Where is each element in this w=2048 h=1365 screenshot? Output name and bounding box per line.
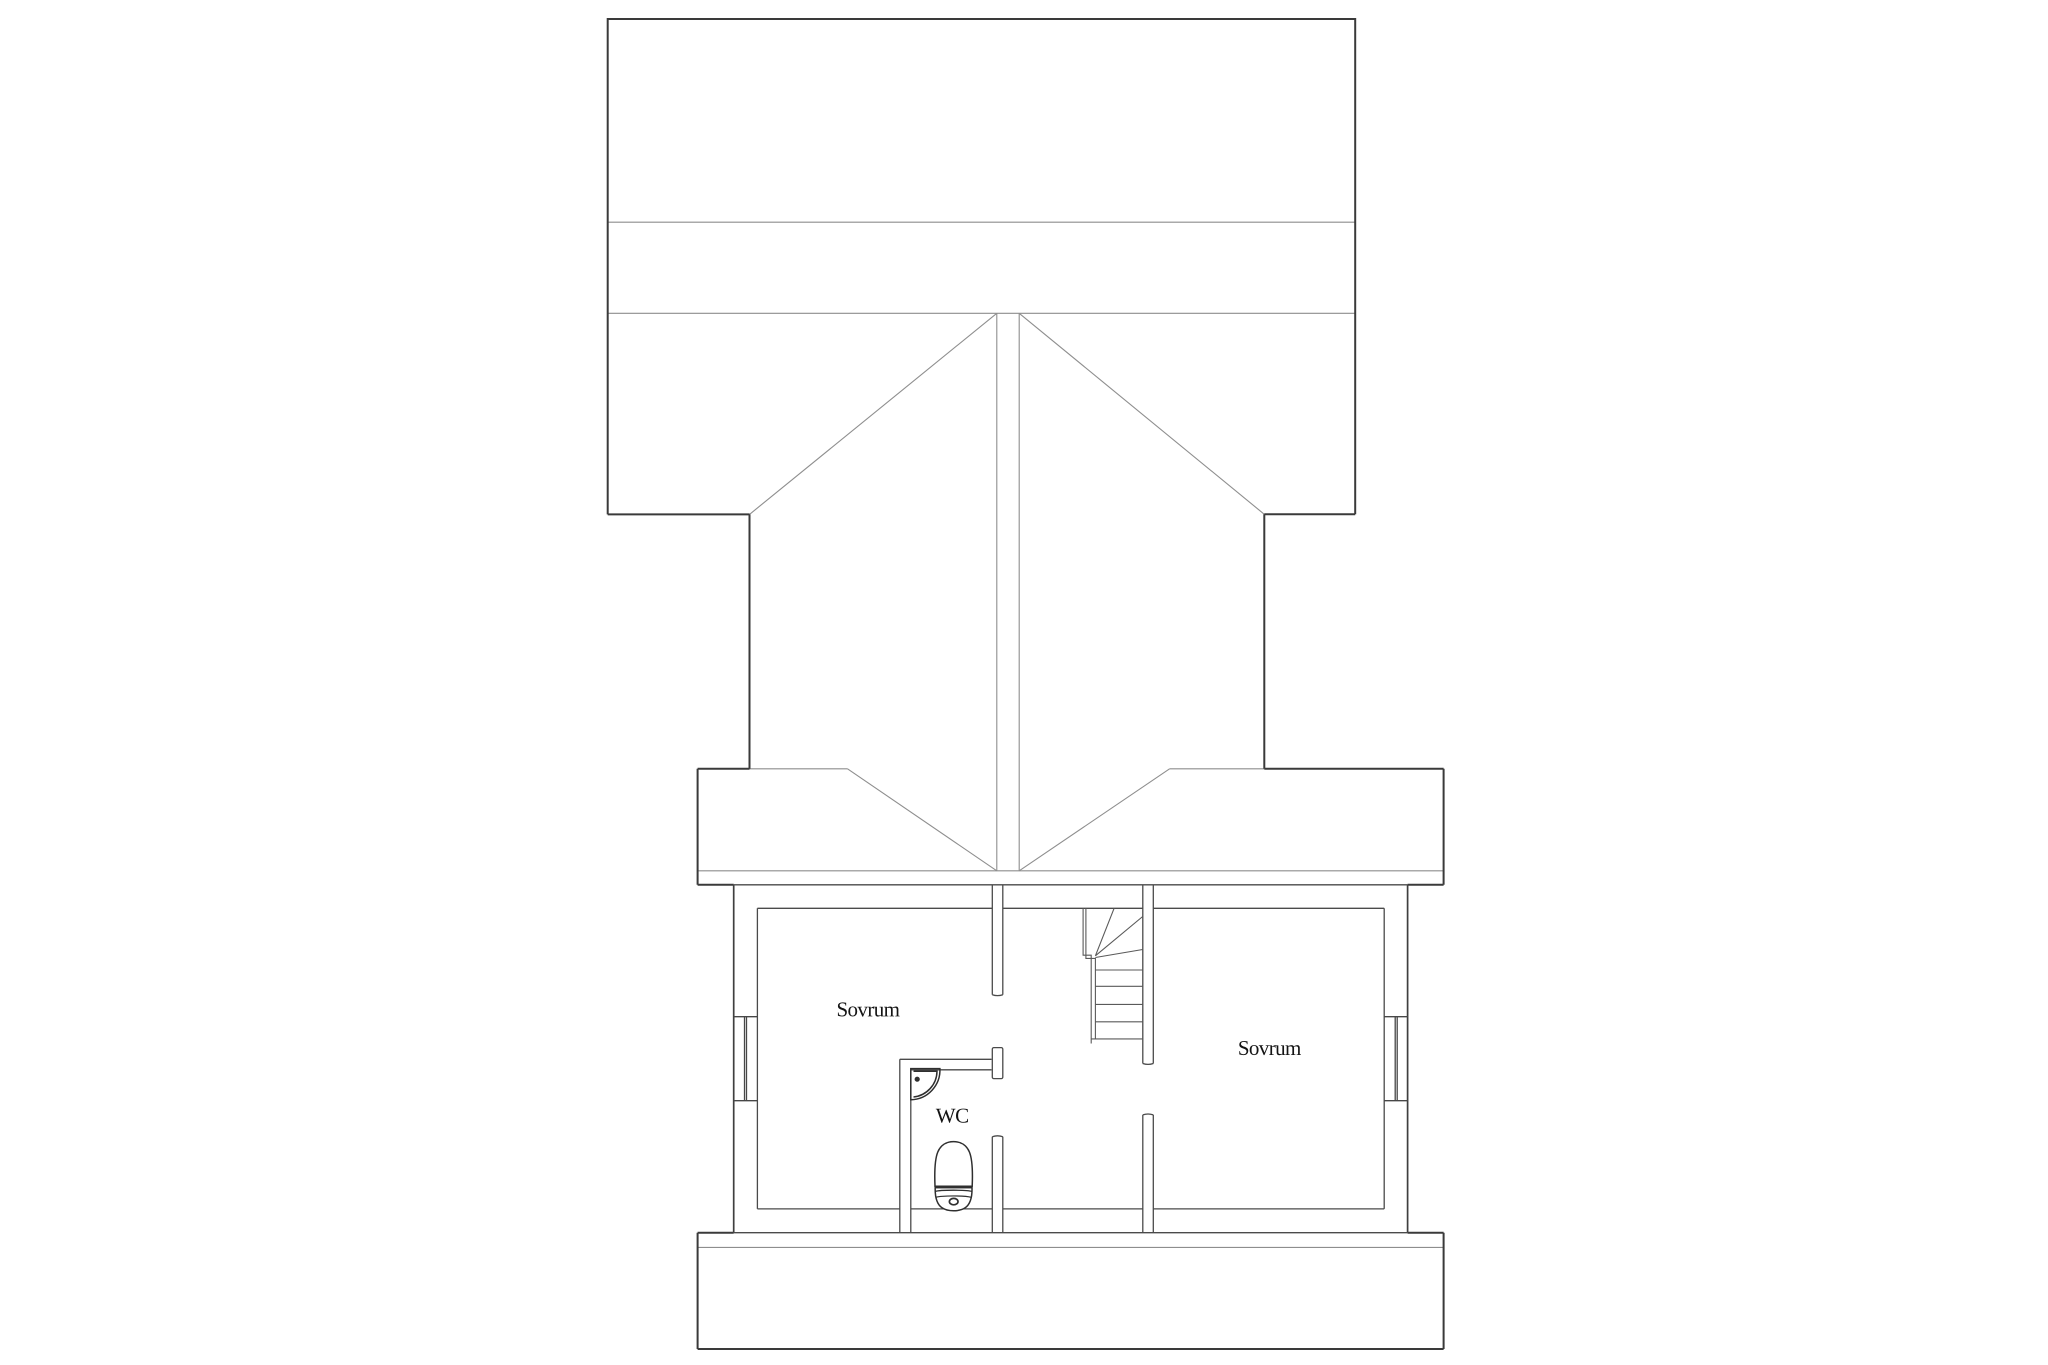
- svg-text:WC: WC: [936, 1103, 969, 1127]
- svg-text:Sovrum: Sovrum: [836, 997, 899, 1021]
- svg-text:Sovrum: Sovrum: [1238, 1036, 1301, 1060]
